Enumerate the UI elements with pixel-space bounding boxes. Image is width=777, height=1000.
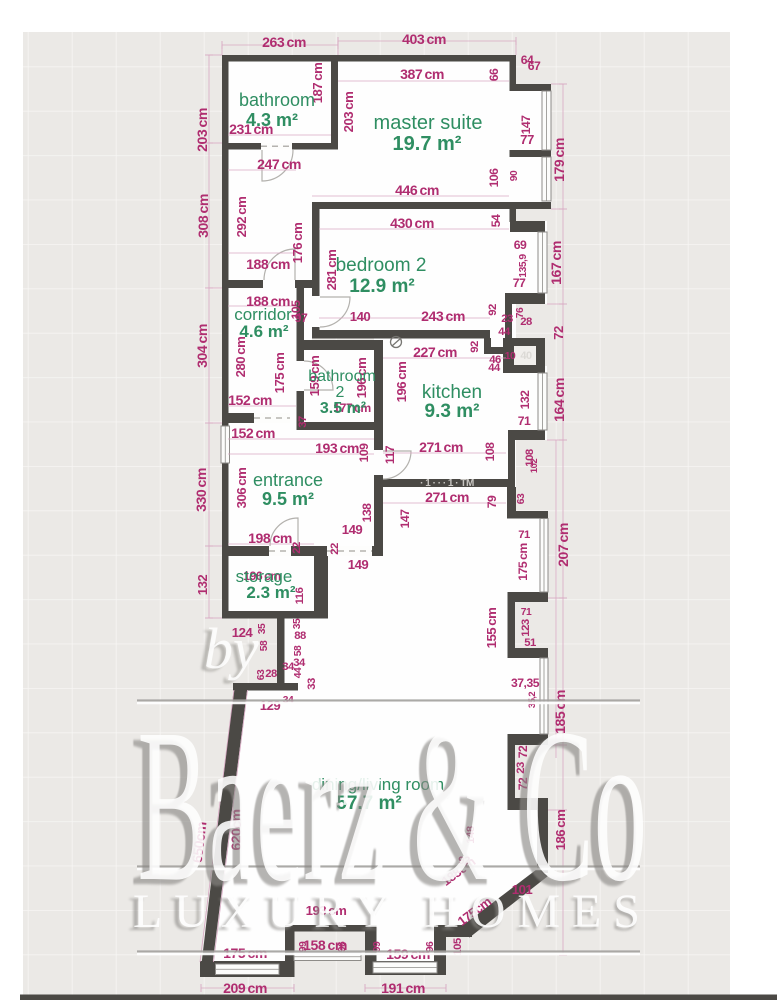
svg-text:bedroom 2: bedroom 2 [336, 255, 427, 276]
svg-text:152 cm: 152 cm [231, 425, 275, 441]
svg-text:92: 92 [487, 304, 499, 316]
svg-text:37: 37 [297, 416, 309, 428]
svg-text:106: 106 [487, 168, 501, 188]
svg-text:4.6 m²: 4.6 m² [239, 322, 288, 341]
svg-text:108: 108 [483, 442, 497, 462]
svg-text:90: 90 [509, 170, 520, 181]
svg-text:10: 10 [505, 351, 516, 362]
svg-text:72: 72 [551, 326, 566, 340]
svg-text:44: 44 [498, 326, 511, 338]
svg-text:2: 2 [336, 384, 345, 401]
svg-text:54: 54 [489, 214, 503, 227]
svg-text:203 cm: 203 cm [194, 108, 210, 152]
svg-text:71: 71 [518, 529, 530, 541]
svg-text:69: 69 [514, 238, 527, 252]
svg-text:280 cm: 280 cm [233, 337, 248, 378]
svg-text:188 cm: 188 cm [246, 256, 290, 272]
svg-text:58: 58 [259, 640, 270, 651]
svg-text:117: 117 [383, 445, 397, 464]
svg-text:175 cm: 175 cm [272, 353, 287, 394]
svg-text:304 cm: 304 cm [194, 324, 210, 368]
svg-text:243 cm: 243 cm [421, 308, 465, 324]
svg-text:bathroom: bathroom [239, 90, 315, 110]
svg-text:entrance: entrance [253, 470, 323, 490]
svg-text:135,9: 135,9 [518, 254, 529, 278]
svg-text:147: 147 [398, 509, 412, 529]
svg-text:198 cm: 198 cm [248, 530, 292, 546]
svg-text:19.7 m²: 19.7 m² [393, 133, 462, 155]
svg-text:138: 138 [360, 503, 374, 523]
svg-text:66: 66 [487, 68, 501, 81]
svg-text:175 cm: 175 cm [516, 543, 530, 581]
svg-text:22: 22 [291, 542, 303, 554]
svg-text:149: 149 [342, 522, 363, 537]
svg-text:92: 92 [469, 341, 481, 353]
svg-text:102: 102 [528, 459, 539, 473]
svg-text:132: 132 [195, 575, 210, 596]
svg-text:116: 116 [294, 587, 306, 604]
svg-text:44: 44 [293, 667, 304, 678]
svg-text:152 cm: 152 cm [228, 392, 272, 408]
svg-text:76: 76 [515, 307, 526, 318]
svg-text:247 cm: 247 cm [257, 156, 301, 172]
svg-text:403 cm: 403 cm [402, 31, 446, 47]
svg-text:330 cm: 330 cm [193, 468, 209, 512]
svg-text:9.3 m²: 9.3 m² [425, 401, 480, 422]
svg-text:3.5 m²: 3.5 m² [320, 400, 366, 417]
svg-text:88: 88 [294, 630, 306, 642]
svg-text:292 cm: 292 cm [234, 197, 249, 238]
svg-text:176 cm: 176 cm [290, 223, 305, 264]
svg-text:167 cm: 167 cm [548, 241, 564, 285]
svg-text:207 cm: 207 cm [555, 523, 571, 567]
svg-text:71: 71 [521, 607, 532, 618]
svg-text:308 cm: 308 cm [195, 194, 211, 238]
svg-text:306 cm: 306 cm [234, 468, 249, 509]
svg-text:109: 109 [357, 443, 371, 463]
svg-text:387 cm: 387 cm [400, 66, 444, 82]
svg-text:master suite: master suite [374, 112, 483, 134]
svg-text:155 cm: 155 cm [484, 608, 499, 649]
svg-text:34: 34 [293, 657, 306, 669]
svg-text:209 cm: 209 cm [223, 980, 267, 996]
svg-text:179 cm: 179 cm [551, 138, 567, 182]
svg-text:164 cm: 164 cm [551, 378, 567, 422]
svg-text:51: 51 [524, 637, 536, 649]
svg-text:271 cm: 271 cm [425, 489, 469, 505]
svg-text:430 cm: 430 cm [390, 215, 434, 231]
svg-text:67: 67 [528, 59, 541, 73]
svg-text:4.3 m²: 4.3 m² [246, 110, 298, 130]
svg-text:140: 140 [350, 309, 371, 324]
svg-text:22: 22 [329, 543, 341, 555]
svg-text:2.3 m²: 2.3 m² [246, 583, 295, 602]
svg-text:40: 40 [520, 350, 532, 362]
svg-text:· 1 · · · 1 · TM: · 1 · · · 1 · TM [420, 478, 474, 489]
svg-text:kitchen: kitchen [422, 382, 482, 403]
svg-text:9.5 m²: 9.5 m² [262, 489, 314, 509]
svg-text:263 cm: 263 cm [262, 34, 306, 50]
svg-text:79: 79 [485, 495, 499, 508]
svg-text:58: 58 [293, 645, 304, 656]
svg-text:147: 147 [519, 115, 533, 135]
svg-text:35: 35 [292, 618, 303, 629]
svg-text:by: by [204, 616, 259, 681]
svg-text:71: 71 [518, 414, 531, 428]
svg-text:44: 44 [488, 362, 501, 374]
svg-text:193 cm: 193 cm [315, 440, 359, 456]
svg-text:203 cm: 203 cm [341, 92, 356, 133]
svg-text:271 cm: 271 cm [419, 439, 463, 455]
svg-text:bathroom: bathroom [308, 368, 376, 385]
svg-text:23: 23 [501, 313, 513, 325]
svg-text:123: 123 [520, 619, 532, 637]
svg-text:12.9 m²: 12.9 m² [349, 276, 414, 297]
svg-text:63: 63 [516, 493, 527, 504]
svg-text:446 cm: 446 cm [395, 182, 439, 198]
svg-text:132: 132 [518, 390, 532, 410]
svg-text:149: 149 [348, 557, 369, 572]
svg-text:227 cm: 227 cm [413, 344, 457, 360]
svg-text:191 cm: 191 cm [381, 980, 425, 996]
svg-text:196 cm: 196 cm [394, 362, 409, 403]
